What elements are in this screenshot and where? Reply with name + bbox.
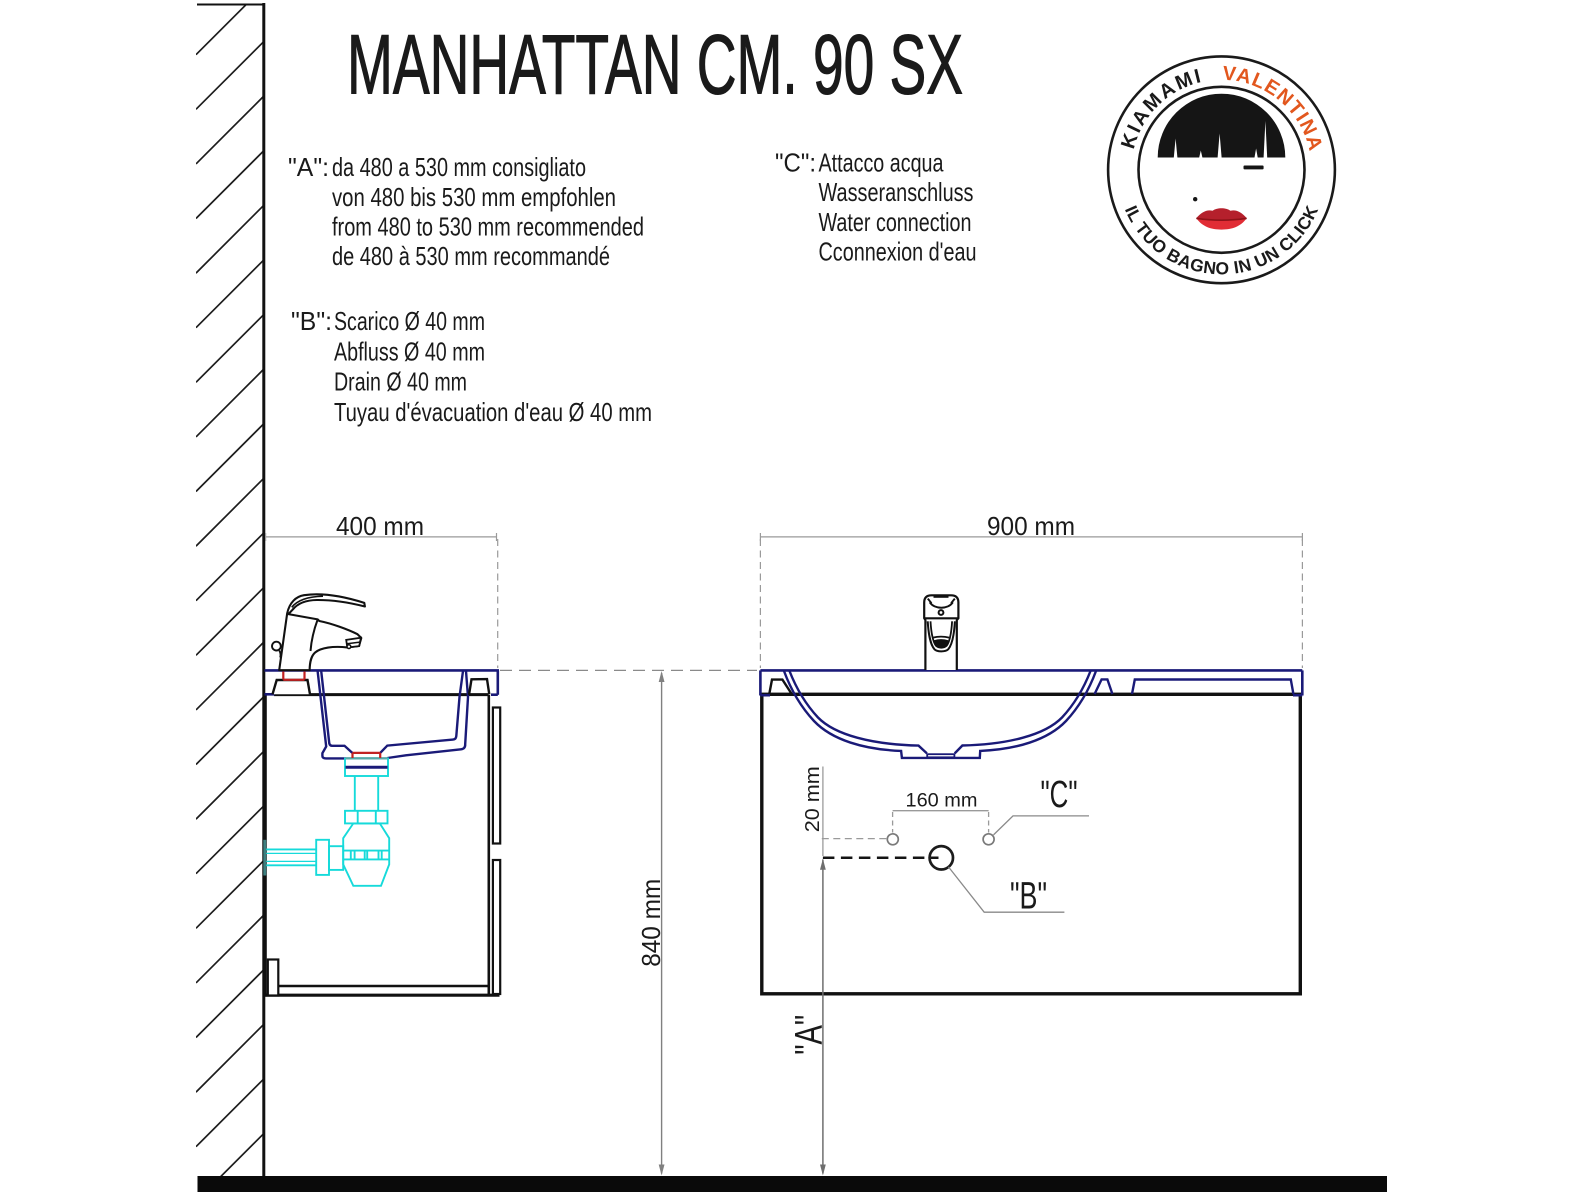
svg-text:20 mm: 20 mm — [802, 766, 824, 832]
svg-text:de 480 à 530 mm recommandé: de 480 à 530 mm recommandé — [332, 241, 610, 271]
svg-text:"C":: "C": — [775, 148, 816, 178]
svg-text:Water connection: Water connection — [819, 207, 972, 237]
svg-text:da 480 a 530 mm consigliato: da 480 a 530 mm consigliato — [332, 152, 586, 182]
svg-text:"C": "C" — [1041, 774, 1078, 816]
svg-text:160 mm: 160 mm — [906, 790, 978, 812]
svg-text:400 mm: 400 mm — [336, 511, 424, 541]
svg-text:Cconnexion d'eau: Cconnexion d'eau — [819, 237, 977, 267]
svg-text:Tuyau d'évacuation d'eau Ø 40: Tuyau d'évacuation d'eau Ø 40 mm — [334, 397, 652, 427]
svg-text:from 480 to 530 mm recommended: from 480 to 530 mm recommended — [332, 211, 644, 241]
svg-text:Wasseranschluss: Wasseranschluss — [819, 177, 974, 207]
svg-text:"A":: "A": — [288, 152, 329, 182]
svg-text:840 mm: 840 mm — [636, 879, 666, 967]
svg-text:MANHATTAN CM. 90 SX: MANHATTAN CM. 90 SX — [347, 18, 963, 112]
svg-text:"B": "B" — [1010, 876, 1047, 918]
svg-text:Attacco acqua: Attacco acqua — [819, 148, 944, 178]
svg-text:Drain Ø 40 mm: Drain Ø 40 mm — [334, 367, 467, 397]
svg-text:"B":: "B": — [291, 306, 332, 336]
svg-text:Abfluss Ø 40 mm: Abfluss Ø 40 mm — [334, 336, 485, 366]
svg-text:"A": "A" — [788, 1015, 831, 1055]
svg-text:von 480 bis 530 mm empfohlen: von 480 bis 530 mm empfohlen — [332, 182, 616, 212]
svg-text:900 mm: 900 mm — [987, 511, 1075, 541]
svg-text:Scarico Ø 40 mm: Scarico Ø 40 mm — [334, 306, 485, 336]
